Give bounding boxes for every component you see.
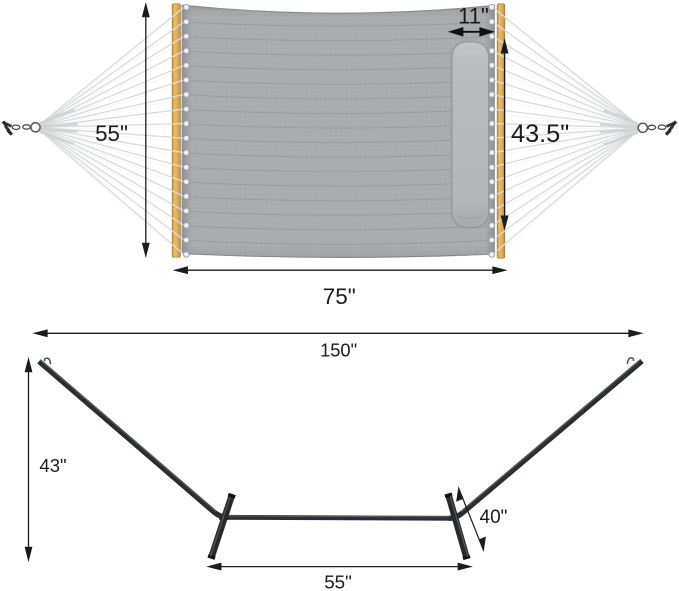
svg-text:43": 43" xyxy=(39,455,66,476)
svg-text:40": 40" xyxy=(480,507,508,528)
svg-text:11": 11" xyxy=(458,3,489,28)
svg-text:75": 75" xyxy=(323,284,356,309)
svg-text:55": 55" xyxy=(324,571,352,591)
svg-text:43.5": 43.5" xyxy=(511,120,569,148)
svg-text:55": 55" xyxy=(95,121,128,146)
svg-text:150": 150" xyxy=(320,340,357,361)
